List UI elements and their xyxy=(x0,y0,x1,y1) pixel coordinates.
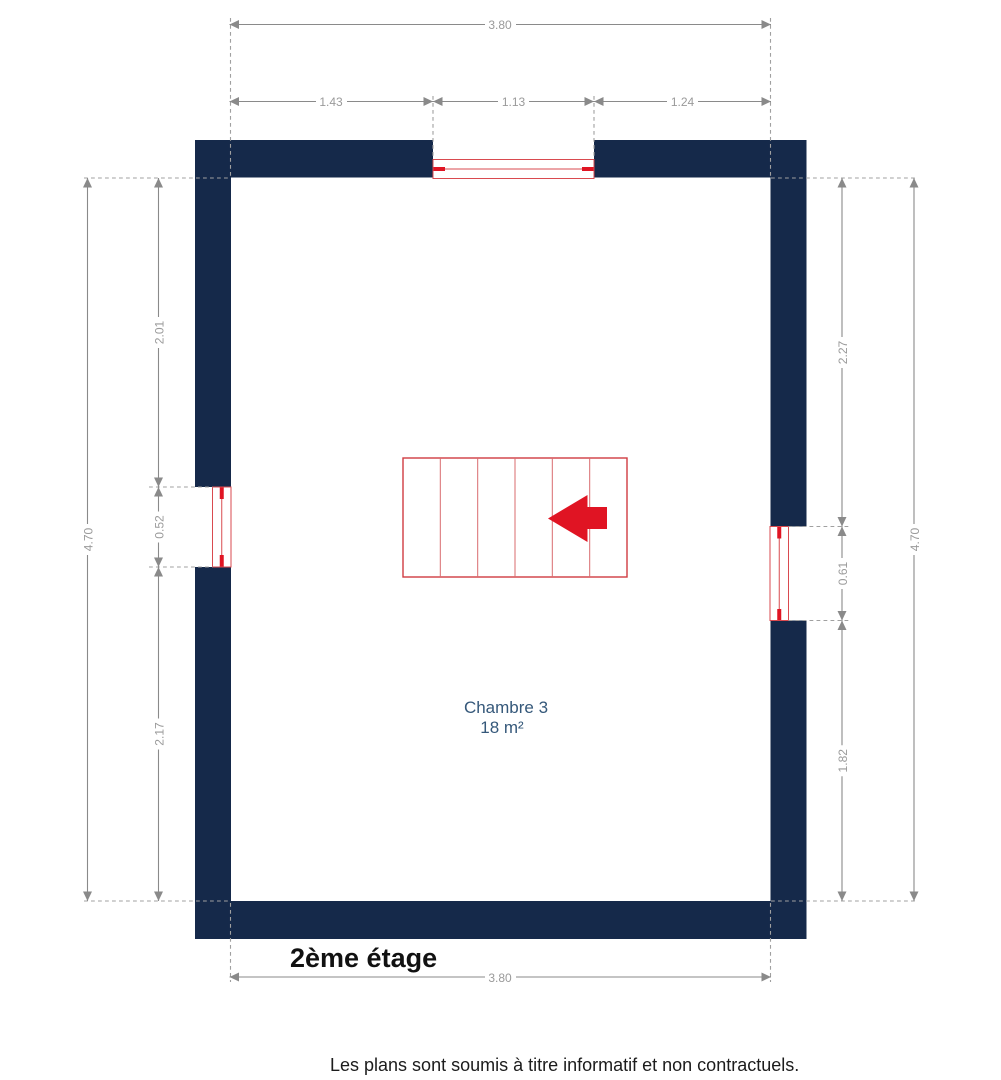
svg-text:3.80: 3.80 xyxy=(488,18,512,32)
svg-text:2ème étage: 2ème étage xyxy=(290,943,437,973)
svg-text:2.27: 2.27 xyxy=(836,340,850,364)
svg-text:4.70: 4.70 xyxy=(908,527,922,551)
svg-text:0.61: 0.61 xyxy=(836,561,850,585)
svg-text:0.52: 0.52 xyxy=(153,515,167,539)
svg-text:1.24: 1.24 xyxy=(671,95,695,109)
svg-text:1.13: 1.13 xyxy=(502,95,526,109)
svg-text:Les plans sont soumis à titre: Les plans sont soumis à titre informatif… xyxy=(330,1055,799,1075)
svg-text:2.17: 2.17 xyxy=(153,722,167,746)
svg-text:18 m²: 18 m² xyxy=(480,718,524,737)
svg-text:3.80: 3.80 xyxy=(488,971,512,985)
svg-text:4.70: 4.70 xyxy=(82,527,96,551)
svg-text:Chambre 3: Chambre 3 xyxy=(464,698,548,717)
svg-text:2.01: 2.01 xyxy=(153,320,167,344)
svg-text:1.43: 1.43 xyxy=(319,95,343,109)
svg-text:1.82: 1.82 xyxy=(836,749,850,773)
